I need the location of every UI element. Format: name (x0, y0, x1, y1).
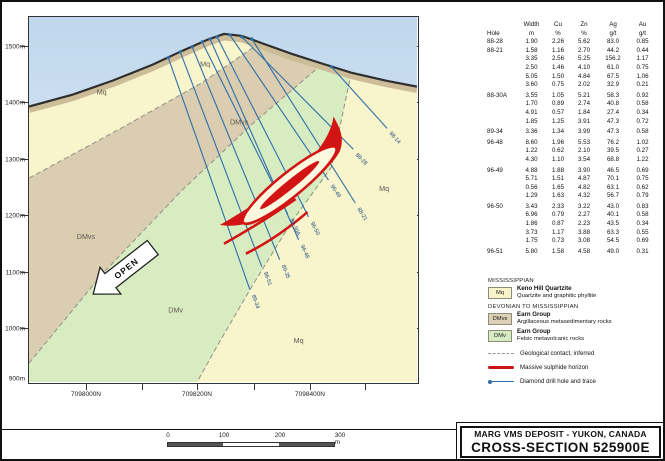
assay-value-cell: 58.3 (597, 92, 629, 101)
scale-segment (279, 443, 334, 446)
legend-desc: Quartzite and graphitic phyllite (517, 293, 596, 300)
assay-value-cell: 0.62 (545, 147, 571, 156)
scale-segment (168, 443, 223, 446)
unit-ag: g/t (597, 30, 629, 39)
assay-value-cell: 44.2 (597, 47, 629, 56)
assay-value-cell: 1.51 (545, 175, 571, 184)
table-row: 1.750.733.0854.50.69 (486, 237, 664, 246)
hole-id-cell: 88-21 (486, 47, 518, 56)
assay-value-cell: 4.88 (518, 167, 545, 176)
hole-id-cell (486, 192, 518, 201)
assay-value-cell: 2.74 (571, 100, 597, 109)
assay-value-cell: 1.17 (629, 55, 656, 64)
assay-value-cell: 1.10 (545, 156, 571, 165)
unit-label-mq: Mq (294, 337, 304, 345)
assay-value-cell: 2.27 (571, 211, 597, 220)
assay-value-cell: 0.79 (545, 211, 571, 220)
table-row: 1.860.872.2343.50.34 (486, 220, 664, 229)
assay-value-cell: 3.36 (518, 128, 545, 137)
unit-label-mq: Mq (200, 61, 210, 69)
elevation-label: 1100m (2, 270, 25, 277)
table-row: 1.851.253.9147.30.72 (486, 118, 664, 127)
assay-value-cell: 49.0 (597, 248, 629, 257)
unit-cu: % (545, 30, 571, 39)
dmv-swatch: DMv (488, 330, 512, 342)
assay-value-cell: 4.10 (571, 64, 597, 73)
table-row: 88-211.581.162.7044.20.44 (486, 47, 664, 56)
assay-value-cell: 47.3 (597, 128, 629, 137)
axis-tick (142, 383, 143, 390)
assay-value-cell: 1.29 (518, 192, 545, 201)
scale-tick-label: 300 m (335, 432, 346, 446)
assay-value-cell: 0.83 (629, 203, 656, 212)
hole-id-cell (486, 118, 518, 127)
assay-value-cell: 1.84 (571, 109, 597, 118)
map-title: MARG VMS DEPOSIT - YUKON, CANADA (474, 429, 646, 439)
assay-value-cell: 0.75 (629, 64, 656, 73)
assay-value-cell: 5.05 (518, 73, 545, 82)
hole-id-cell (486, 55, 518, 64)
table-row: 4.910.571.8427.40.34 (486, 109, 664, 118)
legend-desc: Argillaceous metasedimentary rocks (517, 319, 612, 326)
unit-width: m (518, 30, 545, 39)
table-row: 3.600.752.0232.90.21 (486, 81, 664, 90)
legend-item: Geological contact, inferred (488, 350, 664, 357)
assay-value-cell: 0.87 (545, 220, 571, 229)
assay-value-cell: 0.44 (629, 47, 656, 56)
assay-value-cell: 56.7 (597, 192, 629, 201)
assay-value-cell: 1.50 (545, 73, 571, 82)
assay-value-cell: 40.8 (597, 100, 629, 109)
col-au: Au (629, 21, 656, 30)
assay-value-cell: 39.5 (597, 147, 629, 156)
assay-value-cell: 1.34 (545, 128, 571, 137)
unit-au: g/t (629, 30, 656, 39)
table-row: 0.561.654.8263.10.62 (486, 184, 664, 193)
legend-title: Earn Group (517, 312, 612, 319)
table-row: 5.051.504.8467.51.06 (486, 73, 664, 82)
hole-id-cell: 88-30A (486, 92, 518, 101)
table-row: 3.731.173.8863.30.55 (486, 229, 664, 238)
unit-label-mq: Mq (379, 185, 389, 193)
northing-label: 7098400N (295, 391, 325, 398)
assay-value-cell: 63.3 (597, 229, 629, 238)
assay-value-cell: 3.43 (518, 203, 545, 212)
unit-label-mq: Mq (97, 89, 107, 97)
sulphide-sample (488, 366, 514, 369)
assay-value-cell: 1.02 (629, 139, 656, 148)
axis-tick (21, 272, 28, 273)
scale-tick-label: 0 (166, 432, 170, 439)
table-row: 1.700.892.7440.80.58 (486, 100, 664, 109)
assay-value-cell: 3.99 (571, 128, 597, 137)
axis-tick (21, 46, 28, 47)
assay-value-cell: 1.63 (545, 192, 571, 201)
table-row: 3.352.565.25156.21.17 (486, 55, 664, 64)
assay-value-cell: 1.22 (518, 147, 545, 156)
assay-value-cell: 3.08 (571, 237, 597, 246)
hole-id-cell: 96-50 (486, 203, 518, 212)
assay-value-cell: 2.56 (545, 55, 571, 64)
assay-value-cell: 5.53 (571, 139, 597, 148)
axis-tick (365, 383, 366, 390)
table-row: 2.501.464.1061.00.75 (486, 64, 664, 73)
table-row: 96-494.881.883.9046.50.69 (486, 167, 664, 176)
hole-id-cell (486, 73, 518, 82)
figure-page: SOUTH NORTH 1500m 1400m 1300m 1200m 1100… (0, 0, 665, 461)
assay-value-cell: 5.71 (518, 175, 545, 184)
table-row: 1.220.622.1039.50.27 (486, 147, 664, 156)
assay-value-cell: 76.2 (597, 139, 629, 148)
legend-title: Earn Group (517, 329, 584, 336)
table-header-row: Width Cu Zn Ag Au (486, 21, 664, 30)
assay-value-cell: 4.87 (571, 175, 597, 184)
legend-item: DMvs Earn Group Argillaceous metasedimen… (488, 312, 664, 325)
assay-value-cell: 4.58 (571, 248, 597, 257)
assay-value-cell: 1.58 (545, 248, 571, 257)
legend-item: Diamond drill hole and trace (488, 378, 664, 385)
assay-value-cell: 40.1 (597, 211, 629, 220)
table-row: 5.711.514.8770.10.75 (486, 175, 664, 184)
hole-id-cell: 89-34 (486, 128, 518, 137)
assay-value-cell: 0.56 (518, 184, 545, 193)
legend-line-label: Massive sulphide horizon (520, 364, 588, 371)
assay-value-cell: 3.22 (571, 203, 597, 212)
assay-value-cell: 0.31 (629, 248, 656, 257)
assay-value-cell: 3.73 (518, 229, 545, 238)
assay-value-cell: 4.32 (571, 192, 597, 201)
assay-value-cell: 1.46 (545, 64, 571, 73)
assay-value-cell: 0.58 (629, 211, 656, 220)
hole-id-cell (486, 81, 518, 90)
legend-desc: Felsic metavolcanic rocks (517, 336, 584, 343)
elevation-label: 1300m (2, 157, 25, 164)
assay-value-cell: 1.06 (629, 73, 656, 82)
assay-value-cell: 4.84 (571, 73, 597, 82)
col-ag: Ag (597, 21, 629, 30)
scale-tick-label: 100 (219, 432, 230, 439)
assay-value-cell: 61.0 (597, 64, 629, 73)
assay-value-cell: 0.69 (629, 167, 656, 176)
col-width: Width (518, 21, 545, 30)
assay-value-cell: 4.91 (518, 109, 545, 118)
assay-value-cell: 47.3 (597, 118, 629, 127)
assay-value-cell: 68.8 (597, 156, 629, 165)
assay-value-cell: 0.34 (629, 220, 656, 229)
assay-value-cell: 1.90 (518, 38, 545, 47)
assay-value-cell: 1.25 (545, 118, 571, 127)
assay-value-cell: 1.22 (629, 156, 656, 165)
assay-value-cell: 1.58 (518, 47, 545, 56)
assay-value-cell: 3.60 (518, 81, 545, 90)
assay-value-cell: 0.21 (629, 81, 656, 90)
assay-value-cell: 8.60 (518, 139, 545, 148)
assay-value-cell: 0.73 (545, 237, 571, 246)
hole-id-cell: 96-49 (486, 167, 518, 176)
assay-value-cell: 0.27 (629, 147, 656, 156)
assay-value-cell: 1.65 (545, 184, 571, 193)
table-row: 88-281.902.265.6283.00.85 (486, 38, 664, 47)
assay-value-cell: 2.70 (571, 47, 597, 56)
table-header-units-row: Hole m % % g/t g/t (486, 30, 664, 39)
axis-tick (21, 215, 28, 216)
hole-id-cell (486, 156, 518, 165)
unit-label-dmvs: DMvs (230, 118, 249, 126)
assay-value-cell: 1.16 (545, 47, 571, 56)
assay-value-cell: 0.79 (629, 192, 656, 201)
assay-value-cell: 63.1 (597, 184, 629, 193)
drill-trace-sample (490, 381, 514, 382)
axis-tick (21, 328, 28, 329)
northing-label: 7098000N (71, 391, 101, 398)
assay-value-cell: 0.89 (545, 100, 571, 109)
assay-value-cell: 3.91 (571, 118, 597, 127)
table-row: 1.291.634.3256.70.79 (486, 192, 664, 201)
hole-id-cell: 96-51 (486, 248, 518, 257)
assay-value-cell: 2.10 (571, 147, 597, 156)
assay-value-cell: 4.30 (518, 156, 545, 165)
elevation-label: 1000m (2, 326, 25, 333)
col-cu: Cu (545, 21, 571, 30)
assay-value-cell: 0.75 (545, 81, 571, 90)
hole-id-cell (486, 147, 518, 156)
hole-id-cell (486, 237, 518, 246)
scale-tick-label: 200 (275, 432, 286, 439)
assay-value-cell: 5.62 (571, 38, 597, 47)
hole-id-cell (486, 229, 518, 238)
axis-tick (21, 159, 28, 160)
northing-label: 7098200N (182, 391, 212, 398)
hole-id-cell: 96-48 (486, 139, 518, 148)
assay-value-cell: 70.1 (597, 175, 629, 184)
assay-value-cell: 5.21 (571, 92, 597, 101)
assay-value-cell: 2.02 (571, 81, 597, 90)
assay-value-cell: 67.5 (597, 73, 629, 82)
axis-tick (86, 383, 87, 390)
hole-id-cell (486, 220, 518, 229)
assay-value-cell: 0.92 (629, 92, 656, 101)
legend-title: Keno Hill Quartzite (517, 286, 596, 293)
assay-value-cell: 2.33 (545, 203, 571, 212)
assay-value-cell: 43.0 (597, 203, 629, 212)
assay-value-cell: 156.2 (597, 55, 629, 64)
assay-value-cell: 0.62 (629, 184, 656, 193)
elevation-label: 900m (2, 376, 25, 383)
hole-id-cell: 88-28 (486, 38, 518, 47)
elevation-label: 1500m (2, 44, 25, 51)
title-block: MARG VMS DEPOSIT - YUKON, CANADA CROSS-S… (456, 422, 665, 461)
assay-value-cell: 0.75 (629, 175, 656, 184)
assay-value-cell: 54.5 (597, 237, 629, 246)
mq-swatch: Mq (488, 287, 512, 299)
legend: MISSISSIPPIAN Mq Keno Hill Quartzite Qua… (488, 278, 664, 385)
table-row: 88-30A3.551.055.2158.30.92 (486, 92, 664, 101)
hole-id-cell (486, 211, 518, 220)
unit-label-dmvs: DMvs (77, 233, 96, 241)
assay-value-cell: 3.35 (518, 55, 545, 64)
legend-item: Mq Keno Hill Quartzite Quartzite and gra… (488, 286, 664, 299)
axis-tick (310, 383, 311, 390)
assay-value-cell: 3.90 (571, 167, 597, 176)
assay-value-cell: 0.58 (629, 128, 656, 137)
assay-value-cell: 2.26 (545, 38, 571, 47)
legend-item: DMv Earn Group Felsic metavolcanic rocks (488, 329, 664, 342)
hole-id-cell (486, 109, 518, 118)
assay-value-cell: 3.55 (518, 92, 545, 101)
axis-tick (197, 383, 198, 390)
cross-section-plot: 88-14 88-28 96-49 88-21 96-50 88-30A 96-… (28, 16, 419, 384)
assay-value-cell: 6.96 (518, 211, 545, 220)
unit-label-dmv: DMv (168, 306, 183, 314)
era-heading: MISSISSIPPIAN (488, 278, 664, 284)
map-subtitle: CROSS-SECTION 525900E (471, 440, 650, 455)
assay-table: Width Cu Zn Ag Au Hole m % % g/t g/t 88-… (486, 21, 664, 256)
assay-value-cell: 0.72 (629, 118, 656, 127)
scale-segment (223, 443, 278, 446)
col-hole: Hole (486, 30, 518, 39)
hole-id-cell (486, 64, 518, 73)
hole-id-cell (486, 100, 518, 109)
table-row: 4.301.103.5468.81.22 (486, 156, 664, 165)
dashed-contact-sample (488, 353, 514, 354)
legend-line-label: Geological contact, inferred (520, 350, 594, 357)
assay-value-cell: 3.88 (571, 229, 597, 238)
assay-value-cell: 3.54 (571, 156, 597, 165)
assay-value-cell: 46.5 (597, 167, 629, 176)
elevation-label: 1400m (2, 100, 25, 107)
assay-value-cell: 27.4 (597, 109, 629, 118)
assay-value-cell: 32.9 (597, 81, 629, 90)
assay-value-cell: 5.80 (518, 248, 545, 257)
assay-value-cell: 0.85 (629, 38, 656, 47)
cross-section-svg: 88-14 88-28 96-49 88-21 96-50 88-30A 96-… (29, 17, 417, 382)
assay-rows: 88-281.902.265.6283.00.8588-211.581.162.… (486, 38, 664, 256)
dmvs-swatch: DMvs (488, 313, 512, 325)
assay-value-cell: 0.55 (629, 229, 656, 238)
legend-item: Massive sulphide horizon (488, 364, 664, 371)
col-zn: Zn (571, 21, 597, 30)
assay-value-cell: 1.86 (518, 220, 545, 229)
assay-value-cell: 0.57 (545, 109, 571, 118)
scale-bar: 0 100 200 300 m (162, 432, 342, 447)
assay-value-cell: 2.50 (518, 64, 545, 73)
assay-value-cell: 1.17 (545, 229, 571, 238)
elevation-label: 1200m (2, 213, 25, 220)
assay-value-cell: 1.85 (518, 118, 545, 127)
legend-line-label: Diamond drill hole and trace (520, 378, 596, 385)
assay-value-cell: 1.70 (518, 100, 545, 109)
assay-value-cell: 1.05 (545, 92, 571, 101)
era-heading: DEVONIAN TO MISSISSIPPIAN (488, 304, 664, 310)
assay-value-cell: 1.88 (545, 167, 571, 176)
assay-value-cell: 0.69 (629, 237, 656, 246)
table-row: 96-515.801.584.5849.00.31 (486, 248, 664, 257)
axis-tick (254, 383, 255, 390)
assay-value-cell: 83.0 (597, 38, 629, 47)
assay-value-cell: 5.25 (571, 55, 597, 64)
axis-tick (21, 102, 28, 103)
assay-value-cell: 4.82 (571, 184, 597, 193)
table-row: 96-488.601.965.5376.21.02 (486, 139, 664, 148)
hole-id-cell (486, 184, 518, 193)
hole-id-cell (486, 175, 518, 184)
assay-value-cell: 1.75 (518, 237, 545, 246)
table-row: 96-503.432.333.2243.00.83 (486, 203, 664, 212)
table-row: 6.960.792.2740.10.58 (486, 211, 664, 220)
assay-value-cell: 43.5 (597, 220, 629, 229)
assay-value-cell: 0.58 (629, 100, 656, 109)
assay-value-cell: 2.23 (571, 220, 597, 229)
assay-value-cell: 0.34 (629, 109, 656, 118)
assay-value-cell: 1.96 (545, 139, 571, 148)
scale-bar-segments (167, 442, 335, 447)
unit-zn: % (571, 30, 597, 39)
table-row: 89-343.361.343.9947.30.58 (486, 128, 664, 137)
